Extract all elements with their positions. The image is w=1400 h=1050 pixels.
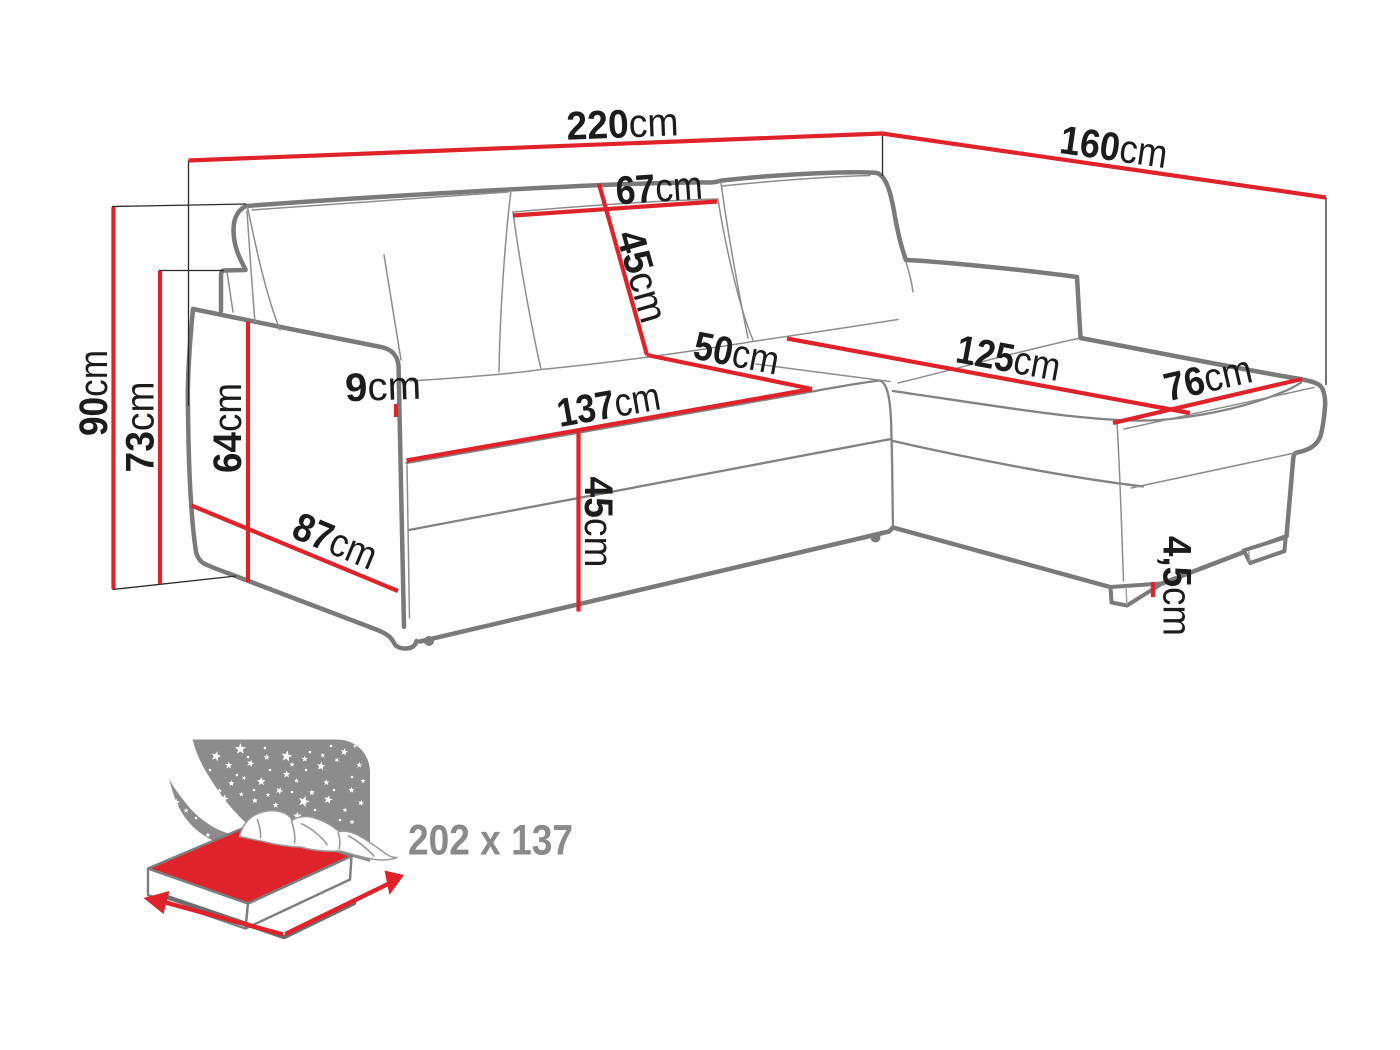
svg-text:73cm: 73cm: [119, 382, 163, 473]
svg-text:90cm: 90cm: [72, 350, 116, 436]
svg-text:45cm: 45cm: [576, 477, 620, 568]
svg-text:220cm: 220cm: [566, 100, 680, 148]
svg-text:67cm: 67cm: [614, 164, 704, 214]
svg-text:202 x 137: 202 x 137: [408, 817, 573, 865]
svg-text:64cm: 64cm: [206, 383, 250, 473]
svg-text:4,5cm: 4,5cm: [1155, 536, 1199, 636]
svg-text:9cm: 9cm: [344, 364, 421, 411]
